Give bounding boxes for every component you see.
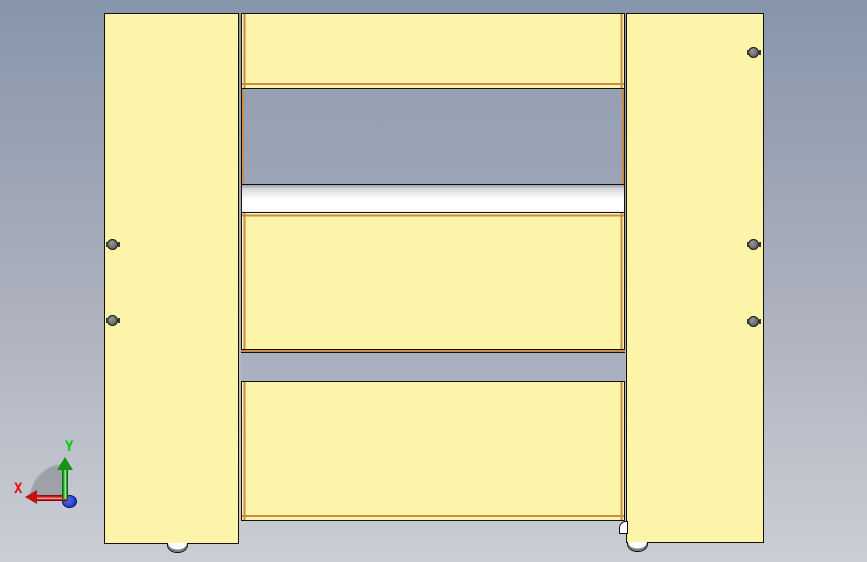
- roller-bar[interactable]: [241, 184, 625, 213]
- hex-bolt[interactable]: [107, 239, 118, 250]
- caster-bracket[interactable]: [619, 521, 628, 534]
- middle-shelf-board[interactable]: [241, 213, 625, 350]
- hex-bolt[interactable]: [107, 315, 118, 326]
- frame-opening: [241, 89, 625, 184]
- lower-gap: [241, 353, 625, 382]
- caster-wheel[interactable]: [167, 543, 188, 553]
- left-side-panel[interactable]: [104, 13, 239, 544]
- x-axis-label: X: [14, 482, 22, 496]
- y-axis-label: Y: [65, 440, 73, 454]
- hex-bolt[interactable]: [748, 316, 759, 327]
- caster-wheel[interactable]: [627, 542, 648, 552]
- orientation-triad: X Y: [10, 438, 90, 514]
- hex-bolt[interactable]: [748, 239, 759, 250]
- y-axis-arrow: [62, 469, 68, 499]
- y-axis-arrowhead-icon: [57, 457, 73, 470]
- top-rail-board[interactable]: [241, 13, 625, 89]
- bottom-panel-board[interactable]: [241, 382, 625, 521]
- cad-viewport[interactable]: X Y: [0, 0, 867, 562]
- hex-bolt[interactable]: [748, 47, 759, 58]
- x-axis-arrowhead-icon: [25, 490, 37, 504]
- right-side-panel[interactable]: [626, 13, 764, 543]
